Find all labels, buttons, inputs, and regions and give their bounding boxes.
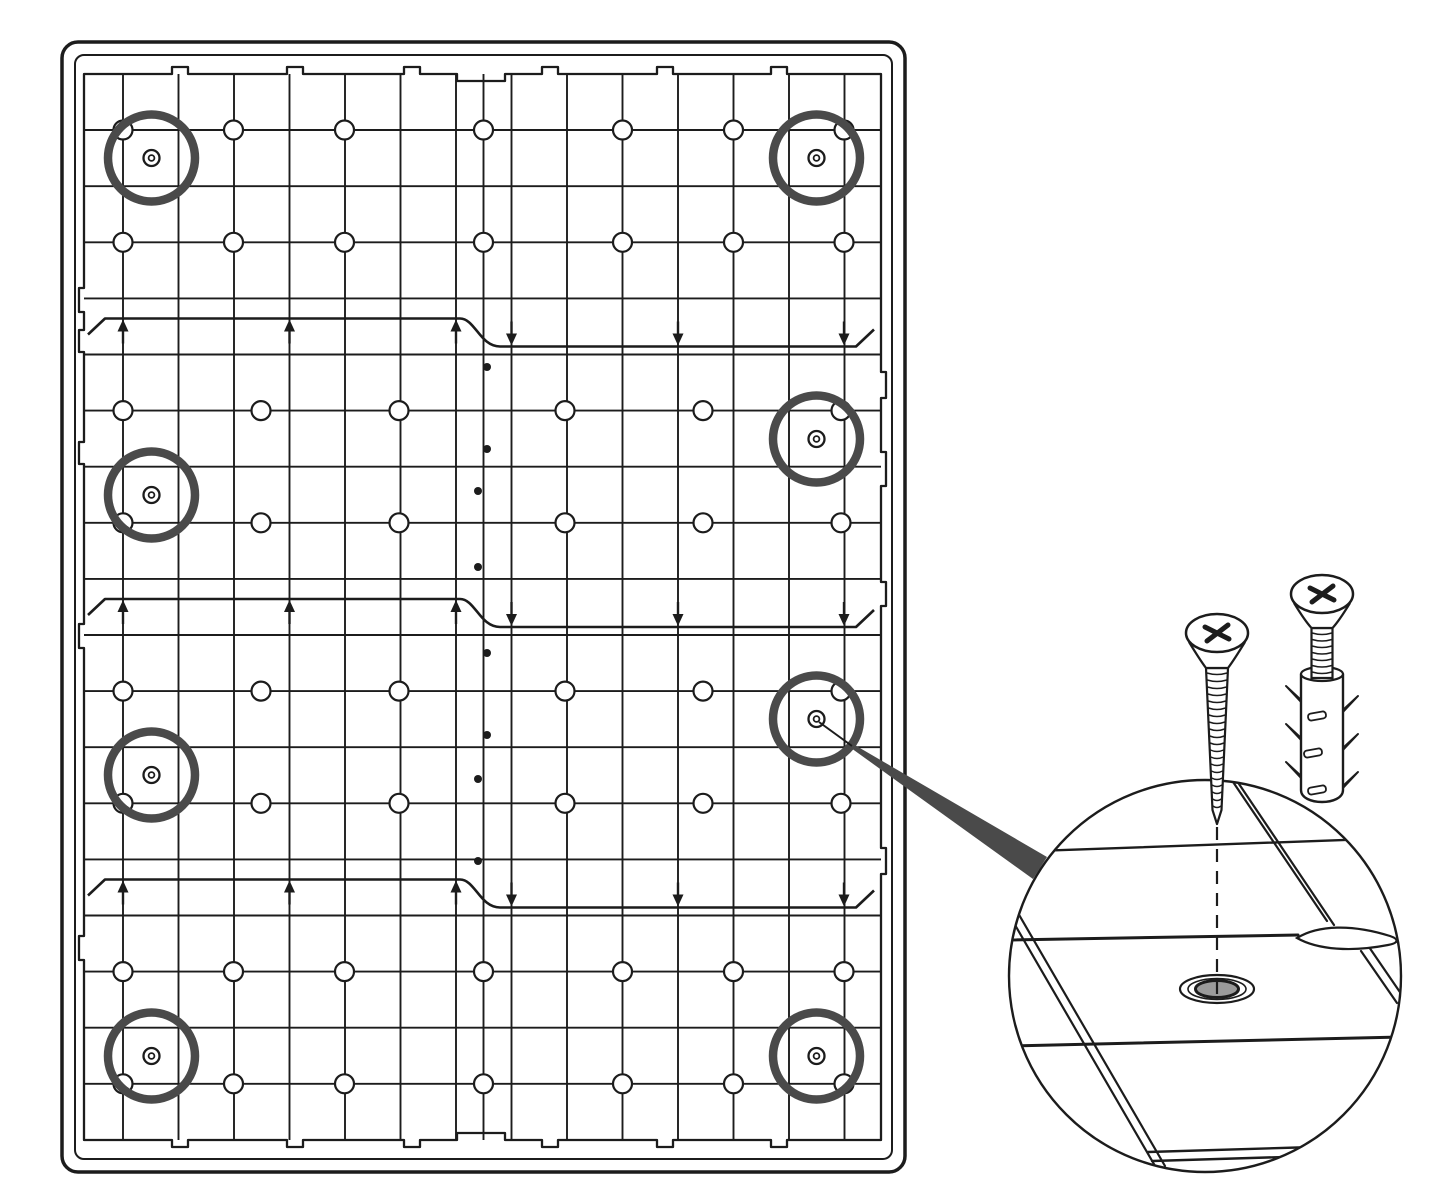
peg-hole xyxy=(835,962,854,981)
peg-hole xyxy=(694,401,713,420)
detail-magnifier xyxy=(1004,575,1404,1172)
peg-hole xyxy=(613,233,632,252)
seam-rivet xyxy=(474,775,482,783)
wall-plug-icon xyxy=(1286,575,1358,802)
assembly-diagram xyxy=(0,0,1445,1200)
peg-hole xyxy=(390,513,409,532)
peg-hole xyxy=(252,794,271,813)
peg-hole xyxy=(252,513,271,532)
peg-hole xyxy=(114,401,133,420)
peg-hole xyxy=(556,794,575,813)
peg-hole xyxy=(224,233,243,252)
peg-hole xyxy=(694,682,713,701)
peg-hole xyxy=(694,513,713,532)
peg-hole xyxy=(335,962,354,981)
peg-hole xyxy=(224,121,243,140)
peg-hole xyxy=(224,1074,243,1093)
peg-hole xyxy=(335,121,354,140)
peg-hole xyxy=(724,1074,743,1093)
peg-hole xyxy=(832,794,851,813)
peg-hole xyxy=(224,962,243,981)
peg-hole xyxy=(556,513,575,532)
peg-hole xyxy=(474,962,493,981)
seam-rivet xyxy=(483,731,491,739)
peg-hole xyxy=(556,401,575,420)
peg-hole xyxy=(390,401,409,420)
peg-hole xyxy=(474,233,493,252)
peg-hole xyxy=(613,121,632,140)
peg-hole xyxy=(474,1074,493,1093)
seam-rivet xyxy=(483,363,491,371)
seam-rivet xyxy=(474,487,482,495)
peg-hole xyxy=(474,121,493,140)
peg-hole xyxy=(114,233,133,252)
peg-hole xyxy=(832,513,851,532)
peg-hole xyxy=(694,794,713,813)
peg-hole xyxy=(252,682,271,701)
seam-rivet xyxy=(483,649,491,657)
peg-hole xyxy=(390,794,409,813)
peg-hole xyxy=(613,962,632,981)
peg-hole xyxy=(114,962,133,981)
panel-back-view xyxy=(62,42,905,1172)
seam-rivet xyxy=(474,563,482,571)
peg-hole xyxy=(556,682,575,701)
diagram-canvas xyxy=(0,0,1445,1200)
peg-hole xyxy=(390,682,409,701)
peg-hole xyxy=(724,121,743,140)
peg-hole xyxy=(835,233,854,252)
peg-hole xyxy=(724,962,743,981)
peg-hole xyxy=(724,233,743,252)
peg-hole xyxy=(335,233,354,252)
peg-hole xyxy=(114,682,133,701)
seam-rivet xyxy=(483,445,491,453)
peg-hole xyxy=(252,401,271,420)
peg-hole xyxy=(613,1074,632,1093)
peg-hole xyxy=(335,1074,354,1093)
seam-rivet xyxy=(474,857,482,865)
